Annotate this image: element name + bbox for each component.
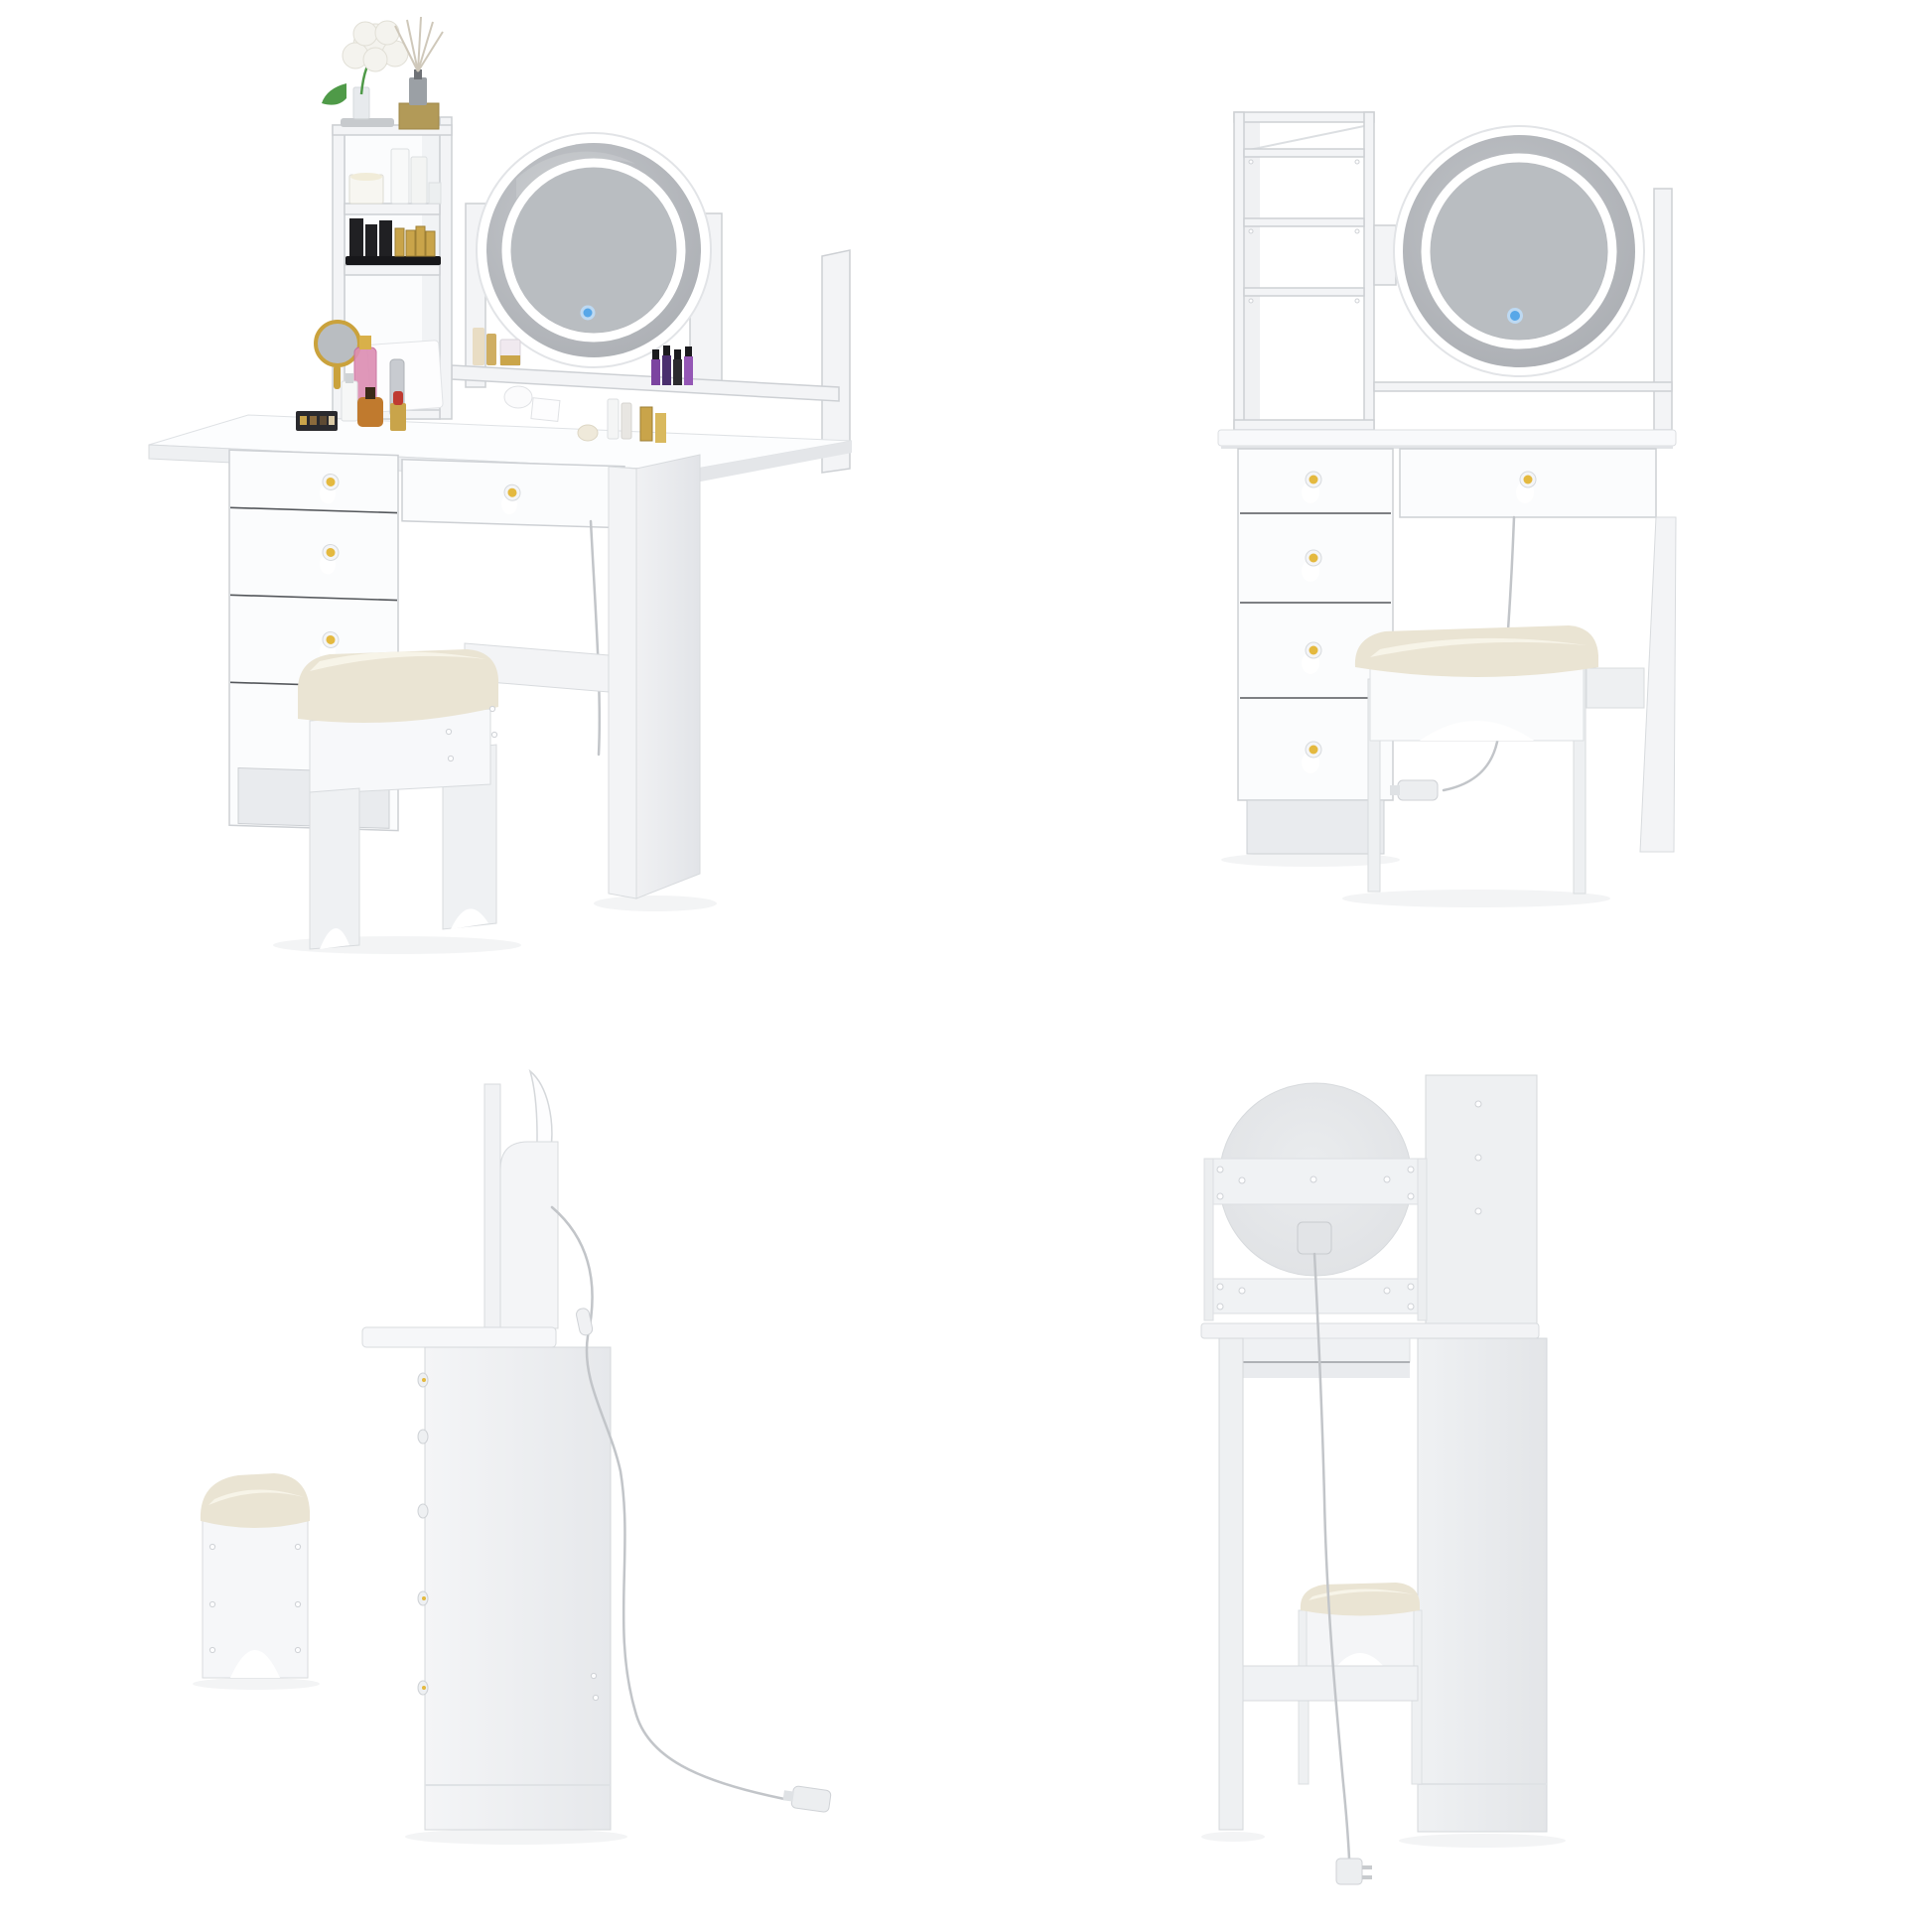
vanity-front-illustration: [966, 0, 1932, 966]
product-gallery: [0, 0, 1932, 1932]
plug-nub: [1390, 785, 1400, 795]
stack-plinth: [1247, 800, 1384, 854]
view-side: [0, 966, 966, 1932]
left-frame-strip: [1204, 1159, 1213, 1320]
desktop: [1218, 430, 1676, 446]
black-tray: [345, 256, 441, 265]
pink-perfume-cap: [359, 336, 371, 349]
gold-lipstick-3: [655, 413, 666, 443]
tower-inner-shade: [1244, 120, 1260, 420]
tower-shelf-1: [1244, 149, 1364, 157]
lipstick-tip: [393, 391, 403, 405]
stool-cushion: [1301, 1583, 1420, 1616]
led-mirror: [1394, 126, 1644, 376]
right-frame-strip: [1418, 1159, 1427, 1320]
touch-button: [584, 309, 593, 318]
small-jar: [429, 183, 441, 204]
tower-bottom-board: [1234, 420, 1374, 430]
leg-shadow: [1201, 1832, 1265, 1842]
cabinet-side-panel: [425, 1347, 611, 1830]
power-plug: [1336, 1859, 1372, 1884]
hutch-right-sidewall: [1654, 189, 1672, 430]
lotion-bottle-2: [411, 157, 427, 204]
knob-gold-dot: [422, 1378, 426, 1382]
pump-top: [345, 373, 353, 383]
amber-oil-bottle: [357, 397, 383, 427]
mirror-glass-inner: [511, 168, 676, 333]
center-drawer: [1400, 449, 1656, 517]
tower-back-panel: [1426, 1075, 1537, 1325]
gold-cosmetic-bottles: [395, 226, 435, 256]
touch-button: [1510, 311, 1520, 321]
leg-shadow: [594, 896, 717, 911]
tower-shelf-3: [1244, 288, 1364, 296]
right-leg-side: [636, 455, 700, 898]
tower-shelf-1: [345, 204, 440, 214]
tower-shelf-2: [345, 265, 440, 275]
view-front-three-quarter: [0, 0, 966, 966]
junction-box: [1298, 1222, 1331, 1254]
stool-left-leg: [310, 788, 359, 949]
left-leg-back: [1219, 1338, 1243, 1830]
cabinet-back-column: [1418, 1338, 1547, 1832]
power-plug: [782, 1784, 832, 1812]
hutch-side-panel: [500, 1142, 558, 1328]
diffuser-bottle: [409, 77, 427, 105]
mini-bottle-2: [621, 403, 631, 439]
knob-gold-dot: [422, 1596, 426, 1600]
hydrangea-bloom: [343, 21, 408, 71]
pump-bottle: [342, 381, 357, 421]
flower-leaf: [322, 83, 346, 105]
vanity-side-illustration: [0, 966, 966, 1932]
round-jar: [504, 386, 532, 408]
hutch-mid-shelf: [1374, 382, 1672, 391]
hand-mirror-handle: [334, 365, 341, 389]
perfume-liquid: [500, 355, 520, 365]
desktop-side: [362, 1327, 556, 1347]
gold-lipstick: [390, 403, 406, 431]
tower-left-wall: [1234, 112, 1244, 430]
lotion-bottle-1: [391, 149, 409, 204]
white-box: [531, 398, 560, 422]
amber-oil-cap: [365, 387, 375, 399]
desktop-back-edge: [1201, 1323, 1539, 1338]
view-back: [966, 966, 1932, 1932]
back-apron: [1224, 1338, 1410, 1362]
cabinet-shadow: [405, 1829, 627, 1845]
power-cable: [591, 521, 600, 755]
cream-tube: [473, 328, 484, 365]
tower-shelf-2: [1244, 218, 1364, 226]
mini-bottle-1: [608, 399, 619, 439]
knob-gold-dot: [422, 1686, 426, 1690]
cream-jar: [578, 425, 598, 441]
crossbar: [1587, 668, 1644, 708]
tower-right-wall: [1364, 112, 1374, 430]
stool-shadow: [1342, 890, 1610, 907]
vanity-back-illustration: [966, 966, 1932, 1932]
vanity-front34-illustration: [0, 0, 966, 966]
stool-detached: [201, 1473, 310, 1678]
tower-right-wall: [440, 117, 452, 419]
mirror-bridge: [1374, 225, 1396, 285]
tower-interior: [1244, 120, 1364, 420]
mirror-back-board: [484, 1084, 500, 1328]
led-mirror: [477, 133, 711, 367]
column-shadow: [1399, 1834, 1566, 1848]
gold-lipstick-2: [640, 407, 652, 441]
right-leg-front: [609, 467, 636, 898]
gold-hand-mirror: [316, 322, 359, 365]
drawer-back-rail: [1224, 1362, 1410, 1378]
center-drawer: [402, 460, 624, 528]
stool-shadow: [193, 1678, 320, 1690]
diffuser-gold-box: [399, 103, 439, 129]
shelf-tower: [1234, 112, 1374, 430]
stretcher-bar: [1243, 1666, 1418, 1701]
power-plug: [1398, 780, 1438, 800]
tower-top-board: [1234, 112, 1374, 122]
right-leg: [1640, 517, 1676, 852]
view-front: [966, 0, 1932, 966]
candle-wax: [350, 173, 382, 181]
gold-tube: [486, 334, 496, 365]
